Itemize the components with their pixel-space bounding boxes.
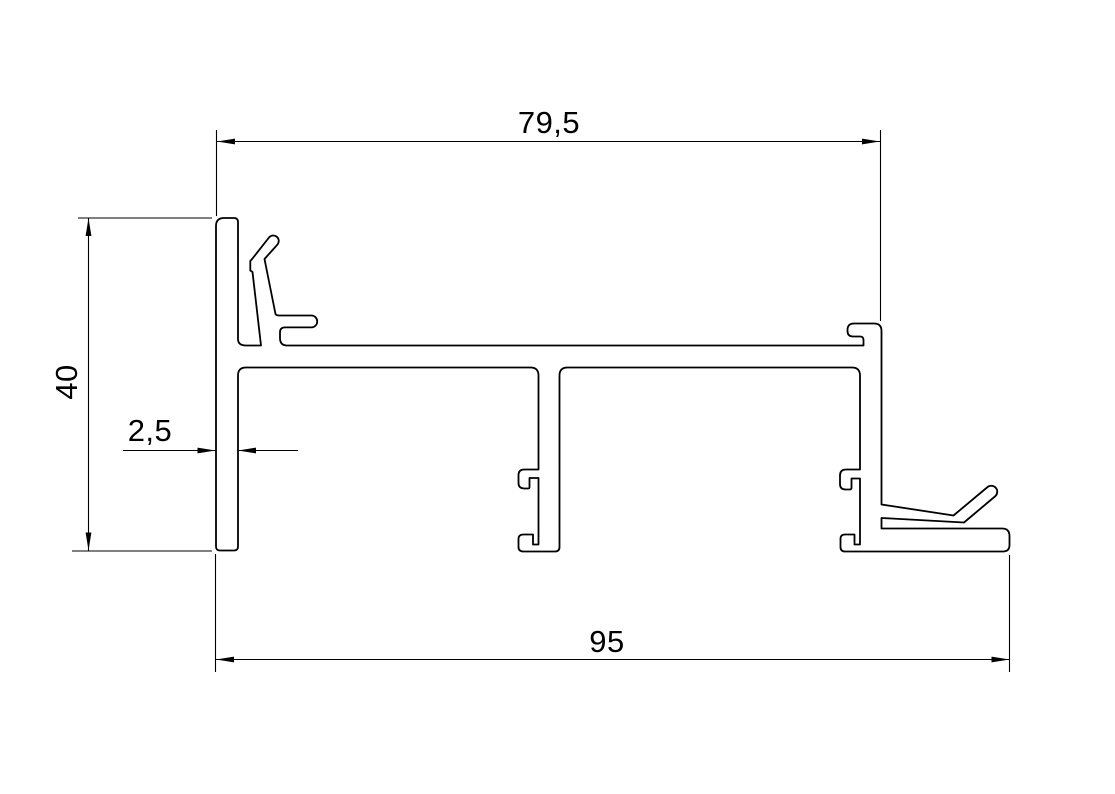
- profile-cross-section: [216, 218, 1010, 552]
- dimension-value: 95: [589, 624, 624, 659]
- arrowhead-left-icon: [217, 139, 235, 145]
- dimension-value: 40: [49, 364, 84, 399]
- profile-outline: [216, 218, 1010, 552]
- arrowhead-left-icon: [238, 448, 256, 454]
- dimension-value: 79,5: [518, 105, 580, 140]
- arrowhead-right-icon: [862, 139, 880, 145]
- dimension-wall-thickness: 2,5: [123, 413, 298, 453]
- arrowhead-up-icon: [86, 218, 92, 236]
- dimension-top-width: 79,5: [217, 105, 881, 321]
- arrowhead-left-icon: [216, 657, 234, 663]
- arrowhead-right-icon: [992, 657, 1010, 663]
- technical-drawing-canvas: 79,5 40 2,5 95: [0, 0, 1115, 794]
- dimension-left-height: 40: [49, 218, 212, 551]
- dimension-bottom-width: 95: [216, 554, 1010, 672]
- dimension-value: 2,5: [128, 413, 173, 448]
- arrowhead-down-icon: [86, 533, 92, 551]
- arrowhead-right-icon: [198, 448, 216, 454]
